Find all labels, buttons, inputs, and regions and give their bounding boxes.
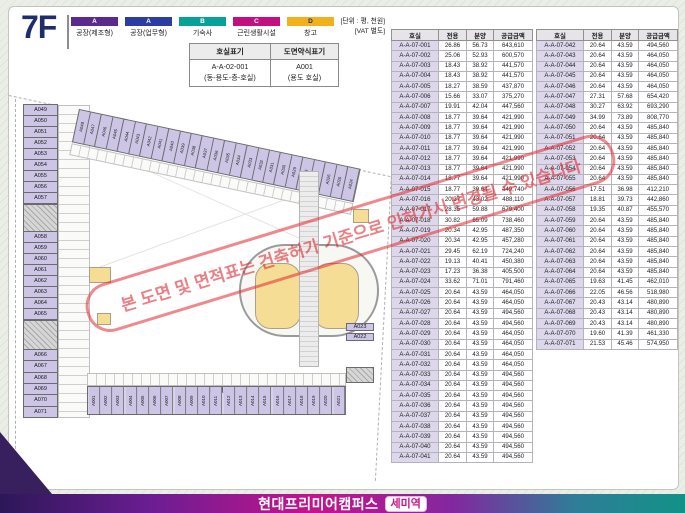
table-cell: 39.64 [467,185,494,195]
table-cell: A-A-07-066 [537,288,584,298]
plan-room-A001: A001 [88,387,100,414]
table-cell: 43.59 [467,298,494,308]
table-cell: A-A-07-067 [537,298,584,308]
table-cell: 421,990 [494,143,533,153]
table-cell: A-A-07-006 [392,92,439,102]
table-row: A-A-07-02820.6443.59494,560 [392,319,533,329]
table-cell: 19.60 [584,329,612,339]
table-cell: A-A-07-023 [392,267,439,277]
table-cell: 518,980 [639,288,678,298]
table-row: A-A-07-00418.4338.92441,570 [392,71,533,81]
table-cell: 20.64 [584,226,612,236]
table-cell: 494,560 [494,380,533,390]
plan-room-A012: A012 [223,387,235,414]
table-cell: 43.59 [612,246,639,256]
table-cell: 28.35 [439,205,467,215]
legend-item: A공장(제조형) [71,17,118,38]
table-row: A-A-07-03420.6443.59494,560 [392,380,533,390]
table-cell: 18.77 [439,154,467,164]
table-cell: 20.64 [584,143,612,153]
table-row: A-A-07-03520.6443.59494,560 [392,391,533,401]
title-divider [67,15,69,49]
table-cell: 19.13 [439,257,467,267]
table-cell: 43.59 [467,370,494,380]
table-cell: 574,950 [639,339,678,349]
table-cell: A-A-07-034 [392,380,439,390]
storage-room [353,209,369,223]
table-cell: A-A-07-059 [537,216,584,226]
table-cell: 20.64 [439,391,467,401]
table-cell: 457,280 [494,236,533,246]
table-cell: 43.59 [467,442,494,452]
table-cell: 20.64 [439,360,467,370]
table-cell: 480,890 [639,319,678,329]
table-cell: 57.68 [612,92,639,102]
table-cell: 375,270 [494,92,533,102]
table-cell: 441,570 [494,61,533,71]
floor-plan: A049A050A051A052A053A054A055A056A057 A05… [15,51,387,485]
table-cell: 485,840 [639,216,678,226]
table-cell: A-A-07-051 [537,133,584,143]
table-cell: 19.91 [439,102,467,112]
table-cell: 20.64 [584,61,612,71]
table-cell: 18.81 [584,195,612,205]
table-cell: A-A-07-046 [537,82,584,92]
table-cell: 654,420 [639,92,678,102]
table-cell: 20.64 [439,308,467,318]
table-row: A-A-07-04830.2763.92693,290 [537,102,678,112]
table-cell: 20.64 [439,411,467,421]
legend-swatch: B [179,17,226,26]
plan-room-A019: A019 [308,387,320,414]
table-cell: 71.01 [467,277,494,287]
table-row: A-A-07-03020.6443.59464,050 [392,339,533,349]
table-cell: A-A-07-014 [392,174,439,184]
table-cell: 43.59 [467,329,494,339]
table-cell: A-A-07-042 [537,41,584,51]
table-cell: A-A-07-040 [392,442,439,452]
table-cell: 485,840 [639,226,678,236]
table-cell: 485,840 [639,257,678,267]
table-cell: A-A-07-007 [392,102,439,112]
table-cell: 485,840 [639,267,678,277]
table-row: A-A-07-04120.6443.59494,560 [392,452,533,462]
storage-room [89,267,111,283]
table-cell: 20.64 [584,216,612,226]
table-cell: 30.82 [439,216,467,226]
column-header: 분양 [612,30,639,41]
table-cell: 43.59 [612,41,639,51]
table-cell: 20.64 [584,154,612,164]
table-row: A-A-07-00318.4338.92441,570 [392,61,533,71]
table-cell: 34.99 [584,113,612,123]
table-cell: 494,560 [494,391,533,401]
table-row: A-A-07-03320.6443.59494,560 [392,370,533,380]
table-cell: 485,840 [639,246,678,256]
table-cell: 43.59 [612,143,639,153]
table-cell: 73.89 [612,113,639,123]
table-cell: 421,990 [494,113,533,123]
table-cell: 39.64 [467,143,494,153]
table-cell: A-A-07-019 [392,226,439,236]
table-cell: A-A-07-015 [392,185,439,195]
table-cell: 26.86 [439,41,467,51]
site-boundary-right [375,171,392,481]
table-cell: 40.87 [612,205,639,215]
table-row: A-A-07-02920.6443.59464,050 [392,329,533,339]
bottom-wing-rooms: A001A002A003A004A005A006A007A008A009A010… [87,386,346,415]
table-cell: 485,840 [639,154,678,164]
table-cell: 42.04 [467,102,494,112]
table-cell: 43.02 [467,195,494,205]
station-badge: 세미역 [385,496,427,512]
table-cell: 462,010 [639,277,678,287]
table-cell: 43.59 [612,82,639,92]
table-cell: 43.59 [612,71,639,81]
plan-room-A023: A023 [346,323,374,331]
table-cell: 39.64 [467,164,494,174]
table-cell: A-A-07-038 [392,421,439,431]
plan-room-A020: A020 [320,387,332,414]
table-row: A-A-07-05718.8139.73442,860 [537,195,678,205]
table-cell: 43.59 [467,401,494,411]
plan-room-A005: A005 [137,387,149,414]
table-cell: 43.14 [612,298,639,308]
table-cell: 20.64 [439,370,467,380]
plan-room-A057: A057 [23,192,58,204]
table-row: A-A-07-06420.6443.59485,840 [537,267,678,277]
table-cell: A-A-07-001 [392,41,439,51]
table-cell: 20.64 [439,401,467,411]
table-cell: 450,380 [494,257,533,267]
table-cell: A-A-07-069 [537,319,584,329]
table-cell: 679,400 [494,205,533,215]
table-cell: 405,500 [494,267,533,277]
floor-title: 7F [21,9,56,46]
table-cell: 42.95 [467,226,494,236]
corridor-units-bottom [87,373,346,386]
legend-label: 근린생활시설 [233,28,280,38]
plan-room-A006: A006 [149,387,161,414]
table-cell: 20.64 [584,246,612,256]
right-stack-rooms: A023A022 [346,323,374,365]
plan-room-A017: A017 [284,387,296,414]
table-cell: 494,560 [494,421,533,431]
table-cell: 20.64 [584,51,612,61]
table-cell: 464,050 [494,298,533,308]
table-row: A-A-07-02620.6443.59464,050 [392,298,533,308]
table-cell: 20.64 [439,380,467,390]
table-cell: 62.19 [467,246,494,256]
table-cell: A-A-07-044 [537,61,584,71]
table-cell: 39.64 [467,113,494,123]
table-cell: 65.09 [467,216,494,226]
table-cell: 43.59 [612,133,639,143]
table-cell: 485,840 [639,133,678,143]
table-cell: A-A-07-053 [537,154,584,164]
table-cell: 25.06 [439,51,467,61]
table-cell: 36.98 [612,185,639,195]
table-cell: A-A-07-057 [537,195,584,205]
table-cell: 20.64 [439,421,467,431]
table-cell: 43.59 [467,308,494,318]
table-cell: 45.46 [612,339,639,349]
table-cell: 461,330 [639,329,678,339]
table-row: A-A-07-03920.6443.59494,560 [392,432,533,442]
table-row: A-A-07-01830.8265.09738,460 [392,216,533,226]
table-cell: 39.64 [467,123,494,133]
plan-room-A065: A065 [23,308,58,320]
table-cell: 693,290 [639,102,678,112]
table-row: A-A-07-04520.6443.59464,050 [537,71,678,81]
table-cell: 18.27 [439,82,467,92]
table-cell: A-A-07-013 [392,164,439,174]
table-row: A-A-07-04320.6443.59464,050 [537,51,678,61]
plan-room-A018: A018 [296,387,308,414]
table-cell: 63.92 [612,102,639,112]
table-cell: 20.34 [439,226,467,236]
table-row: A-A-07-06720.4343.14480,890 [537,298,678,308]
table-cell: A-A-07-022 [392,257,439,267]
column-header: 호실 [392,30,439,41]
table-row: A-A-07-00126.8656.73643,610 [392,41,533,51]
table-cell: A-A-07-063 [537,257,584,267]
table-row: A-A-07-01318.7739.64421,990 [392,164,533,174]
table-cell: 480,890 [639,298,678,308]
table-cell: 480,890 [639,308,678,318]
column-header: 공급금액 [494,30,533,41]
table-row: A-A-07-06519.6341.45462,010 [537,277,678,287]
table-cell: 43.59 [612,226,639,236]
table-cell: 724,240 [494,246,533,256]
table-cell: 494,560 [494,432,533,442]
table-cell: A-A-07-009 [392,123,439,133]
table-cell: 20.64 [584,41,612,51]
table-cell: A-A-07-052 [537,143,584,153]
table-cell: 38.92 [467,71,494,81]
table-row: A-A-07-05020.6443.59485,840 [537,123,678,133]
table-row: A-A-07-02520.6443.59464,050 [392,288,533,298]
table-cell: A-A-07-026 [392,298,439,308]
table-row: A-A-07-02020.3442.95457,280 [392,236,533,246]
table-row: A-A-07-00225.0652.93600,570 [392,51,533,61]
legend-item: B기숙사 [179,17,226,38]
table-cell: 18.43 [439,71,467,81]
table-row: A-A-07-01418.7739.64421,990 [392,174,533,184]
table-cell: 27.31 [584,92,612,102]
table-cell: A-A-07-024 [392,277,439,287]
table-cell: 494,560 [494,442,533,452]
table-cell: 494,560 [494,370,533,380]
legend-item: C근린생활시설 [233,17,280,38]
table-cell: 43.14 [612,319,639,329]
table-cell: 18.77 [439,174,467,184]
brand-name: 현대프리미어캠퍼스 [258,494,378,513]
table-cell: 18.43 [439,61,467,71]
table-row: A-A-07-06622.0546.56518,980 [537,288,678,298]
table-row: A-A-07-05520.6443.59485,840 [537,174,678,184]
table-cell: A-A-07-056 [537,185,584,195]
sheet-card: 7F A공장(제조형)A공장(업무형)B기숙사C근린생활시설D창고 [단위 : … [8,6,679,490]
table-cell: 464,050 [494,349,533,359]
table-cell: 43.59 [467,452,494,462]
table-cell: 455,570 [639,205,678,215]
plan-room-A014: A014 [247,387,259,414]
table-row: A-A-07-02219.1340.41450,380 [392,257,533,267]
table-cell: 43.59 [612,154,639,164]
table-cell: 29.45 [439,246,467,256]
table-cell: 20.43 [584,298,612,308]
price-table-left: 호실전용분양공급금액 A-A-07-00126.8656.73643,610A-… [391,29,533,463]
plan-room-A022: A022 [346,333,374,341]
legend-label: 기숙사 [179,28,226,38]
table-cell: 43.59 [612,61,639,71]
table-cell: 447,560 [494,102,533,112]
table-cell: A-A-07-062 [537,246,584,256]
table-cell: A-A-07-070 [537,329,584,339]
table-cell: A-A-07-058 [537,205,584,215]
table-cell: 20.64 [439,319,467,329]
table-cell: 464,050 [494,288,533,298]
table-row: A-A-07-02433.6271.01791,460 [392,277,533,287]
table-cell: 791,460 [494,277,533,287]
table-cell: 43.59 [467,421,494,431]
table-cell: A-A-07-003 [392,61,439,71]
table-cell: 738,460 [494,216,533,226]
table-cell: A-A-07-010 [392,133,439,143]
table-cell: 21.53 [584,339,612,349]
table-cell: 30.27 [584,102,612,112]
table-cell: 19.63 [584,277,612,287]
table-row: A-A-07-03720.6443.59494,560 [392,411,533,421]
table-cell: 18.77 [439,133,467,143]
table-cell: A-A-07-041 [392,452,439,462]
table-cell: 15.66 [439,92,467,102]
left-wing-mid-rooms: A058A059A060A061A062A063A064A065 [23,232,58,320]
table-cell: 39.73 [612,195,639,205]
table-cell: A-A-07-068 [537,308,584,318]
table-cell: 485,840 [639,143,678,153]
table-cell: 43.59 [467,391,494,401]
table-cell: 20.37 [439,195,467,205]
plan-room-A016: A016 [272,387,284,414]
table-row: A-A-07-00719.9142.04447,560 [392,102,533,112]
table-row: A-A-07-02720.6443.59494,560 [392,308,533,318]
table-cell: 20.64 [439,452,467,462]
table-row: A-A-07-05220.6443.59485,840 [537,143,678,153]
table-header-row: 호실전용분양공급금액 [537,30,678,41]
table-cell: 20.64 [439,349,467,359]
table-row: A-A-07-04727.3157.68654,420 [537,92,678,102]
table-cell: 487,350 [494,226,533,236]
ramp-lane [299,171,319,367]
table-cell: 20.64 [584,164,612,174]
table-cell: 485,840 [639,236,678,246]
plan-room-A011: A011 [210,387,222,414]
table-cell: 38.59 [467,82,494,92]
table-row: A-A-07-05320.6443.59485,840 [537,154,678,164]
table-row: A-A-07-06320.6443.59485,840 [537,257,678,267]
table-cell: A-A-07-004 [392,71,439,81]
table-row: A-A-07-06820.4343.14480,890 [537,308,678,318]
table-cell: 494,560 [494,401,533,411]
table-cell: 39.64 [467,133,494,143]
table-cell: 20.64 [439,329,467,339]
table-cell: A-A-07-049 [537,113,584,123]
table-cell: 17.23 [439,267,467,277]
table-row: A-A-07-00615.6633.07375,270 [392,92,533,102]
table-cell: 20.64 [584,82,612,92]
plan-room-A021: A021 [333,387,345,414]
table-cell: A-A-07-064 [537,267,584,277]
table-cell: 43.14 [612,308,639,318]
footer-bar: 현대프리미어캠퍼스 세미역 [0,494,685,513]
table-cell: 56.73 [467,41,494,51]
table-row: A-A-07-05617.5136.98412,210 [537,185,678,195]
table-cell: 464,050 [639,61,678,71]
table-row: A-A-07-04220.6443.59494,560 [537,41,678,51]
table-cell: A-A-07-035 [392,391,439,401]
table-row: A-A-07-06220.6443.59485,840 [537,246,678,256]
table-row: A-A-07-04420.6443.59464,050 [537,61,678,71]
table-row: A-A-07-06920.4343.14480,890 [537,319,678,329]
table-cell: A-A-07-032 [392,360,439,370]
table-cell: A-A-07-037 [392,411,439,421]
table-cell: 441,570 [494,71,533,81]
table-cell: 421,990 [494,164,533,174]
units-note-line2: [VAT 별도] [301,27,385,37]
table-cell: 20.64 [439,432,467,442]
table-cell: 20.64 [584,123,612,133]
table-cell: 38.92 [467,61,494,71]
table-cell: 442,860 [639,195,678,205]
ramp-island-right [313,263,359,329]
table-cell: 20.64 [584,133,612,143]
table-cell: 43.59 [612,236,639,246]
storage-room [97,313,111,325]
legend-label: 공장(업무형) [125,28,172,38]
table-cell: A-A-07-055 [537,174,584,184]
ramp-island-left [255,263,301,329]
units-note-line1: [단위 : 평, 천원] [301,17,385,27]
stair-core [23,204,58,232]
table-cell: A-A-07-016 [392,195,439,205]
table-cell: A-A-07-008 [392,113,439,123]
table-cell: 20.34 [439,236,467,246]
table-cell: A-A-07-021 [392,246,439,256]
table-cell: 808,770 [639,113,678,123]
table-row: A-A-07-01728.3559.88679,400 [392,205,533,215]
table-cell: 494,560 [494,319,533,329]
table-cell: A-A-07-025 [392,288,439,298]
plan-room-A071: A071 [23,406,58,418]
table-cell: 20.64 [439,288,467,298]
table-row: A-A-07-05120.6443.59485,840 [537,133,678,143]
table-row: A-A-07-05920.6443.59485,840 [537,216,678,226]
table-cell: 18.77 [439,143,467,153]
table-cell: A-A-07-047 [537,92,584,102]
table-cell: 20.64 [584,267,612,277]
table-cell: A-A-07-020 [392,236,439,246]
table-cell: 421,990 [494,133,533,143]
table-row: A-A-07-07019.6041.39461,330 [537,329,678,339]
table-cell: A-A-07-061 [537,236,584,246]
table-cell: 18.77 [439,113,467,123]
table-row: A-A-07-01620.3743.02488,110 [392,195,533,205]
table-cell: 485,840 [639,164,678,174]
column-header: 전용 [584,30,612,41]
table-row: A-A-07-05420.6443.59485,840 [537,164,678,174]
